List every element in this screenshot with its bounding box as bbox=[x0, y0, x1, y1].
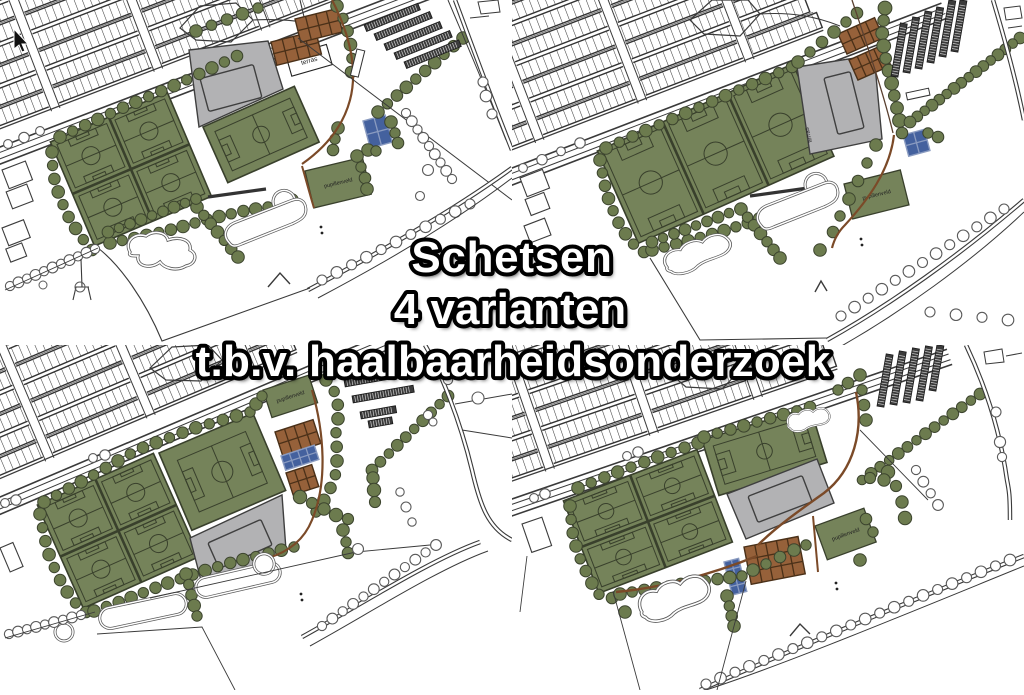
svg-text:4 varianten: 4 varianten bbox=[394, 285, 626, 334]
svg-text:Schetsen: Schetsen bbox=[411, 233, 612, 282]
svg-text:t.b.v. haalbaarheidsonderzoek: t.b.v. haalbaarheidsonderzoek bbox=[196, 337, 831, 386]
